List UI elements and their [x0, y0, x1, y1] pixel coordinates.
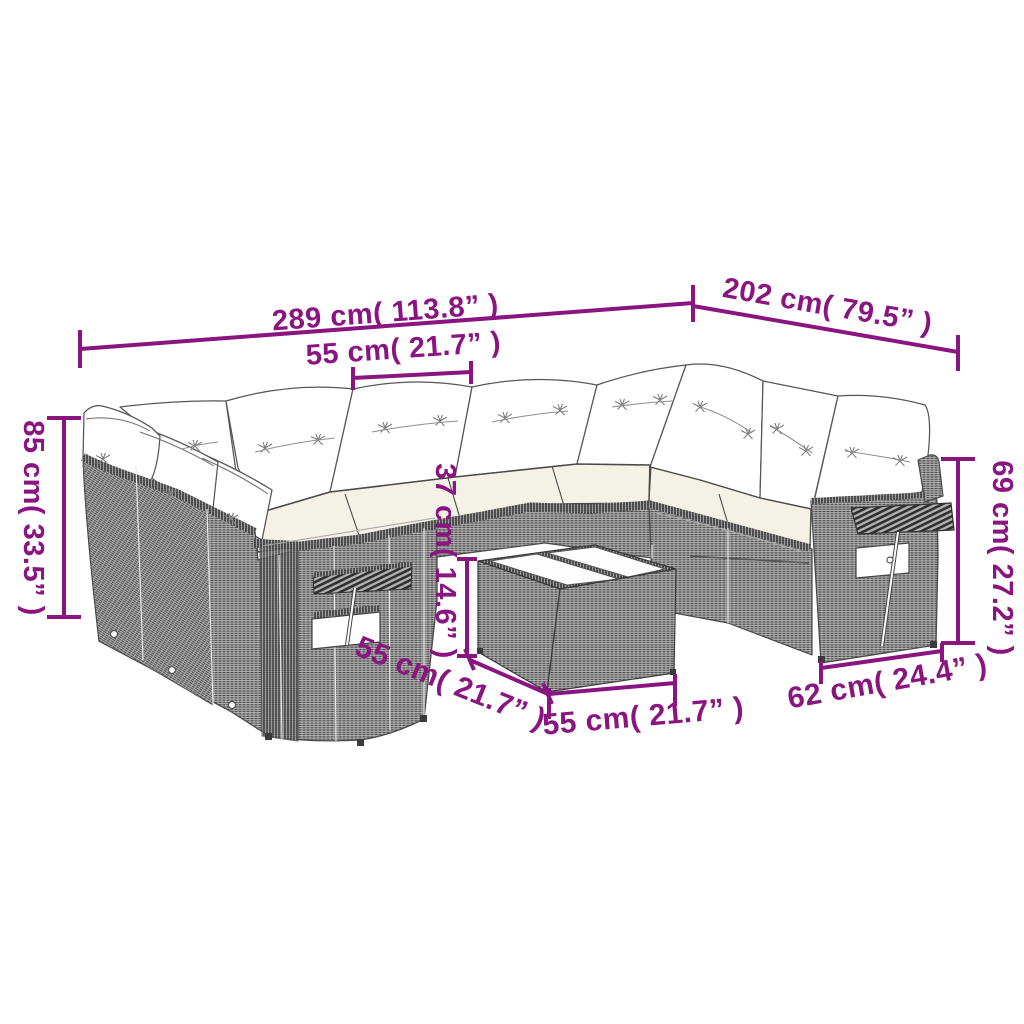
svg-text:85 cm( 33.5” ): 85 cm( 33.5” )	[17, 420, 49, 616]
svg-text:69 cm( 27.2” ): 69 cm( 27.2” )	[986, 460, 1018, 656]
svg-text:37 cm( 14.6” ): 37 cm( 14.6” )	[429, 463, 461, 659]
